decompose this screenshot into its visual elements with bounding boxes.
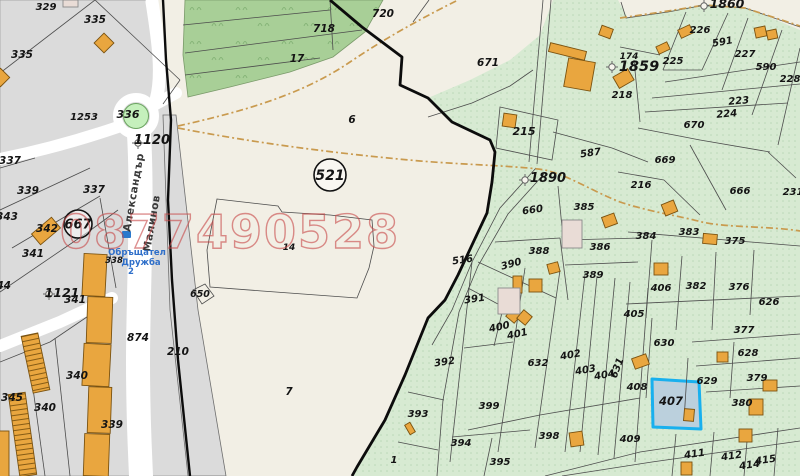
parcel-label: 382: [686, 281, 707, 292]
parcel-label: 1859: [619, 59, 659, 75]
parcel-label: 329: [36, 2, 57, 13]
pink-building: [498, 288, 520, 314]
orange-building: [83, 434, 109, 476]
parcel-label: 1860: [710, 0, 745, 11]
parcel-label: 666: [730, 186, 751, 197]
parcel-label: 405: [623, 309, 645, 320]
parcel-label: 626: [759, 297, 780, 308]
parcel-label: 407: [658, 394, 683, 408]
parcel-label: 874: [127, 332, 149, 344]
marker-circle: [701, 3, 707, 9]
parcel-label: 231: [783, 187, 800, 198]
parcel-label: 669: [655, 155, 676, 166]
info-note-line3: 2: [128, 267, 134, 277]
parcel-label: 210: [167, 346, 189, 358]
parcel-label: 393: [408, 409, 429, 420]
pink-building: [63, 0, 78, 7]
orange-building: [766, 29, 778, 40]
parcel-label: 345: [1, 392, 23, 404]
parcel-label: 399: [479, 401, 500, 412]
parcel-label: 343: [0, 211, 18, 223]
orange-building: [86, 297, 113, 344]
orange-building: [754, 26, 767, 38]
parcel-label: 388: [529, 246, 550, 257]
circled-parcel-label: 521: [314, 159, 346, 191]
cadastral-map[interactable]: Александър Малинов Обръщател Дружба 2 32…: [0, 0, 800, 476]
parcel-label: 409: [619, 434, 641, 445]
orange-building: [654, 263, 668, 275]
parcel-label: 341: [22, 248, 44, 260]
parcel-label: 335: [11, 49, 33, 61]
parcel-label: 223: [728, 95, 750, 108]
parcel-label: 670: [684, 120, 705, 131]
circled-label-text: 521: [315, 168, 344, 184]
parcel-label: 17: [290, 53, 305, 65]
parcel-label: 406: [650, 283, 672, 294]
orange-building: [569, 431, 584, 447]
parcel-label: 630: [654, 338, 675, 349]
parcel-label: 340: [34, 402, 56, 414]
parcel-label: 377: [734, 325, 755, 336]
parcel-label: 383: [679, 227, 700, 238]
parcel-label: 375: [725, 236, 746, 247]
parcel-label: 1890: [530, 171, 566, 186]
marker-circle: [609, 64, 615, 70]
orange-building: [547, 262, 560, 275]
parcel-label: 215: [513, 125, 536, 138]
parcel-label: 340: [66, 370, 88, 382]
marker-circle: [522, 177, 528, 183]
parcel-label: 226: [690, 25, 711, 36]
orange-building: [681, 462, 692, 475]
orange-building: [683, 409, 694, 422]
orange-building: [564, 58, 596, 91]
parcel-label: 379: [747, 373, 768, 384]
parcel-label: 380: [732, 398, 753, 409]
parcel-label: 398: [539, 431, 560, 442]
pink-building: [562, 220, 582, 248]
parcel-label: 384: [636, 231, 657, 242]
parcel-label: 1253: [70, 112, 98, 123]
parcel-label: 1120: [134, 133, 170, 148]
parcel-label: 386: [590, 242, 611, 253]
parcel-label: 6: [348, 114, 355, 126]
orange-building: [717, 352, 728, 362]
parcel-label: 720: [372, 8, 394, 20]
parcel-label: 337: [0, 155, 22, 167]
parcel-label: 7: [285, 386, 293, 398]
parcel-label: 628: [738, 348, 759, 359]
parcel-label: 335: [84, 14, 106, 26]
orange-building: [703, 233, 718, 244]
parcel-label: 339: [17, 185, 39, 197]
parcel-label: 1: [391, 455, 398, 466]
parcel-label: 225: [663, 56, 684, 67]
orange-building: [739, 429, 752, 442]
parcel-label: 227: [735, 49, 756, 60]
parcel-label: 408: [626, 382, 648, 393]
parcel-label: 395: [490, 457, 511, 468]
road-north: [152, 2, 159, 100]
parcel-label: 590: [756, 62, 777, 73]
parcel-label: 341: [64, 294, 86, 306]
orange-building: [0, 431, 9, 476]
parcel-label: 224: [716, 108, 738, 121]
parcel-label: 376: [729, 282, 750, 293]
parcel-label: 394: [451, 438, 472, 449]
parcel-label: 389: [583, 270, 604, 281]
parcel-label: 336: [117, 108, 140, 121]
parcel-label: 671: [477, 57, 499, 69]
parcel-label: 216: [631, 180, 652, 191]
parcel-label: 385: [574, 202, 595, 213]
parcel-label: 718: [313, 23, 335, 35]
watermark-phone: 0877490528: [60, 205, 400, 259]
map-viewport[interactable]: Александър Малинов Обръщател Дружба 2 32…: [0, 0, 800, 476]
orange-building: [529, 279, 542, 292]
parcel-label: 650: [190, 289, 210, 300]
parcel-label: 339: [101, 419, 123, 431]
orange-building: [82, 253, 107, 296]
parcel-label: 218: [612, 90, 633, 101]
parcel-label: 632: [528, 358, 549, 369]
parcel-label: 629: [697, 376, 718, 387]
parcel-label: 342: [36, 223, 58, 235]
parcel-label: 337: [83, 184, 106, 196]
parcel-label: 228: [780, 74, 800, 85]
parcel-label: 344: [0, 280, 11, 292]
